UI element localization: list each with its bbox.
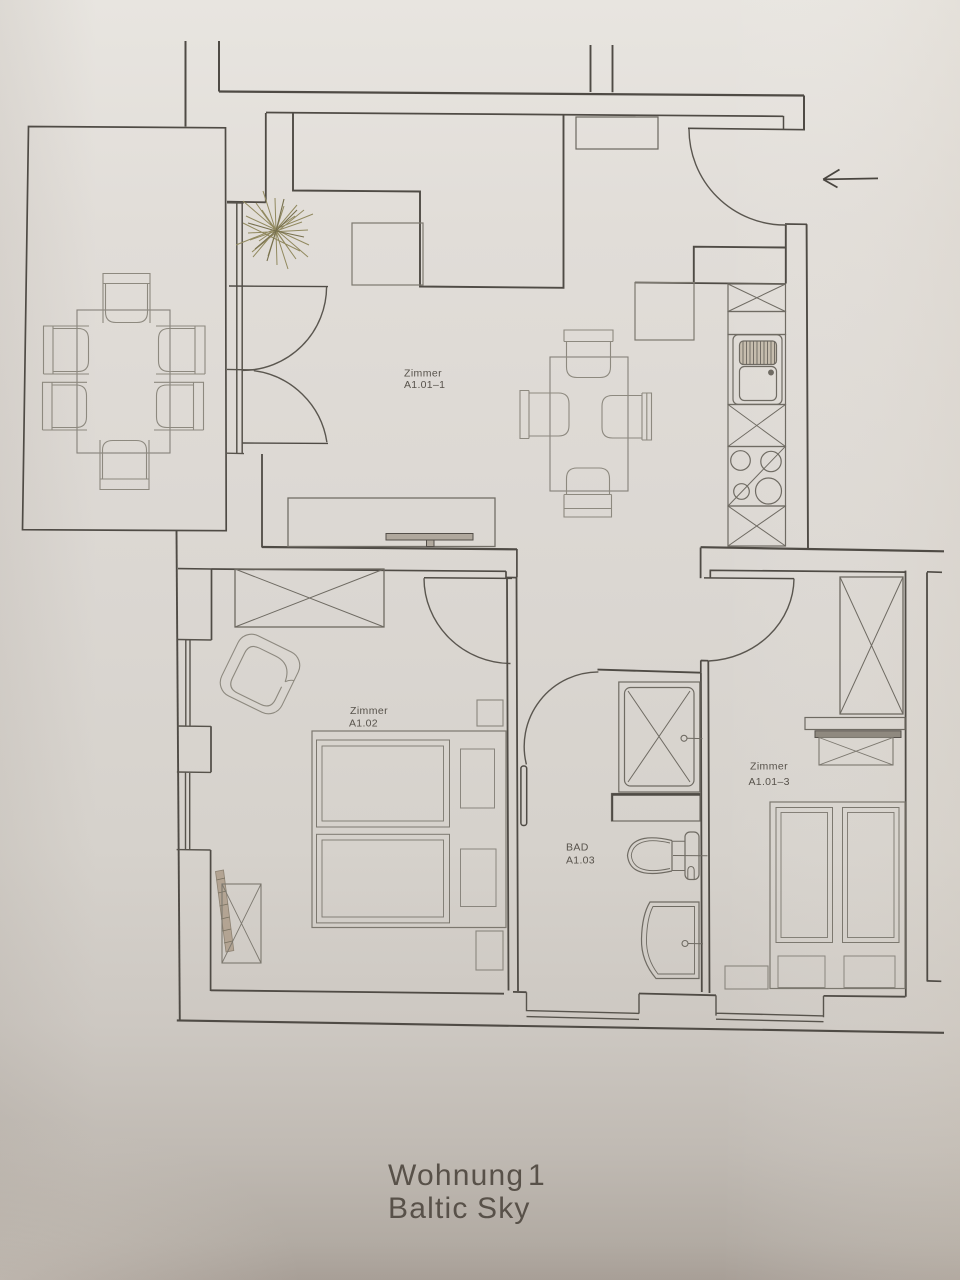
svg-text:A1.03: A1.03 <box>566 855 595 867</box>
svg-text:A1.01–1: A1.01–1 <box>404 379 445 391</box>
svg-text:Zimmer: Zimmer <box>350 705 388 717</box>
svg-text:Zimmer: Zimmer <box>404 368 442 380</box>
svg-text:BAD: BAD <box>566 842 589 854</box>
svg-text:Wohnung1: Wohnung1 <box>388 1159 546 1192</box>
svg-text:A1.01–3: A1.01–3 <box>749 776 790 788</box>
svg-text:Zimmer: Zimmer <box>750 761 788 773</box>
svg-text:BalticSky: BalticSky <box>388 1192 531 1225</box>
svg-text:A1.02: A1.02 <box>349 718 378 730</box>
